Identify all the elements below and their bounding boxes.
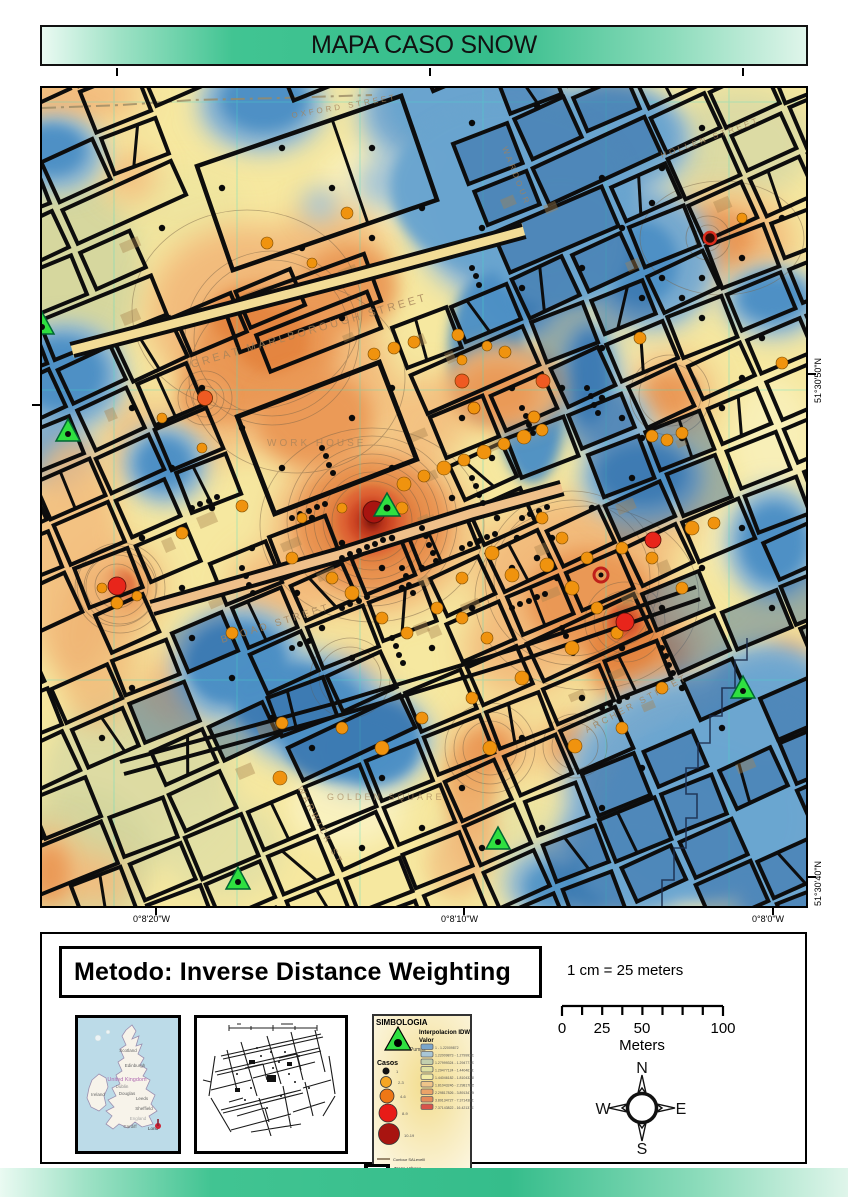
svg-text:8-9: 8-9 — [402, 1111, 409, 1116]
svg-text:Casos: Casos — [377, 1060, 398, 1067]
svg-text:United Kingdom: United Kingdom — [107, 1077, 147, 1083]
svg-text:N: N — [636, 1060, 648, 1077]
svg-text:Dublin: Dublin — [116, 1084, 129, 1089]
svg-text:1.44046182 - 1.81043245: 1.44046182 - 1.81043245 — [435, 1076, 474, 1080]
svg-text:25: 25 — [594, 1020, 611, 1037]
svg-text:Cardiff: Cardiff — [123, 1124, 137, 1129]
svg-text:Edinburgh: Edinburgh — [125, 1063, 146, 1068]
svg-text:GOLDEN SQUARE: GOLDEN SQUARE — [327, 792, 445, 802]
svg-text:E: E — [676, 1101, 687, 1118]
svg-text:Meters: Meters — [619, 1037, 665, 1054]
svg-text:100: 100 — [710, 1020, 735, 1037]
svg-text:10-19: 10-19 — [404, 1133, 415, 1138]
svg-text:WORK HOUSE: WORK HOUSE — [267, 438, 366, 449]
svg-text:S: S — [637, 1141, 648, 1158]
svg-text:50: 50 — [634, 1020, 651, 1037]
svg-text:1.81043246 - 2.29817825: 1.81043246 - 2.29817825 — [435, 1084, 474, 1088]
svg-text:1.29477124 - 1.44046181: 1.29477124 - 1.44046181 — [435, 1069, 474, 1073]
svg-text:Sheffield: Sheffield — [135, 1106, 153, 1111]
svg-text:4-6: 4-6 — [400, 1094, 407, 1099]
svg-text:Douglas: Douglas — [119, 1091, 136, 1096]
svg-text:2.29817826 - 3.89134726: 2.29817826 - 3.89134726 — [435, 1091, 474, 1095]
svg-text:Ireland: Ireland — [91, 1092, 105, 1097]
svg-text:England: England — [130, 1116, 147, 1121]
svg-text:2-3: 2-3 — [398, 1080, 405, 1085]
svg-text:7.37143822 - 16.4213101: 7.37143822 - 16.4213101 — [435, 1106, 474, 1110]
svg-text:3.89134727 - 7.37143821: 3.89134727 - 7.37143821 — [435, 1099, 474, 1103]
svg-text:1.22009873 - 1.27999323: 1.22009873 - 1.27999323 — [435, 1054, 474, 1058]
svg-text:0: 0 — [558, 1020, 566, 1037]
svg-text:1.27999324 - 1.29477123: 1.27999324 - 1.29477123 — [435, 1061, 474, 1065]
svg-text:1: 1 — [396, 1069, 399, 1074]
svg-text:Contour SALevelll: Contour SALevelll — [393, 1157, 425, 1162]
svg-text:Leeds: Leeds — [136, 1096, 149, 1101]
svg-text:W: W — [595, 1101, 611, 1118]
svg-text:Interpolacion IDW: Interpolacion IDW — [419, 1030, 470, 1036]
svg-text:Scotland: Scotland — [119, 1048, 137, 1053]
svg-text:Valor: Valor — [419, 1038, 434, 1044]
svg-text:1 - 1.22009872: 1 - 1.22009872 — [435, 1046, 459, 1050]
